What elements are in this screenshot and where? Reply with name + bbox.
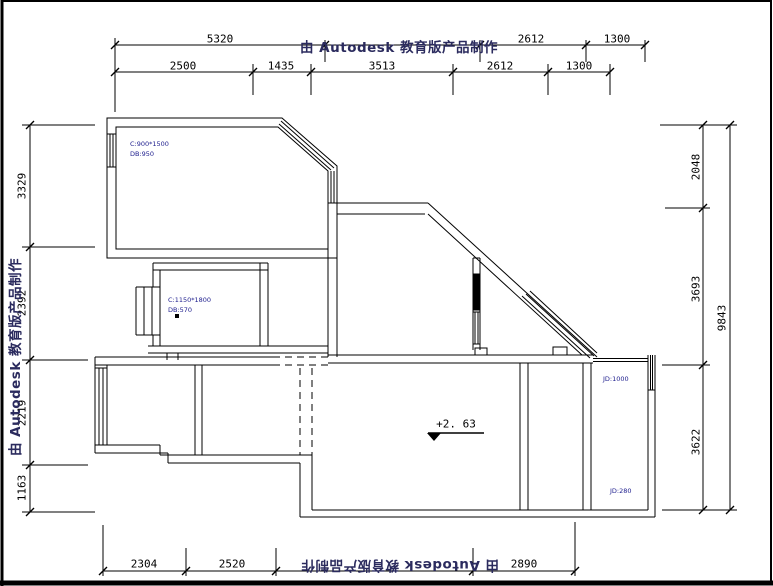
jd-annotation-upper: JD:1000 xyxy=(603,374,629,384)
dim-bottom-2890: 2890 xyxy=(511,559,538,570)
window-annotation-a: C:900*1500 DB:950 xyxy=(130,139,169,160)
dim-top1-2612: 2612 xyxy=(518,34,545,45)
window-a-size: C:900*1500 xyxy=(130,139,169,149)
dim-bottom-2304: 2304 xyxy=(131,559,158,570)
dim-top1-1300: 1300 xyxy=(604,34,631,45)
dim-top2-1300: 1300 xyxy=(566,61,593,72)
dim-top2-3513: 3513 xyxy=(369,61,396,72)
watermark-top: 由 Autodesk 教育版产品制作 xyxy=(300,36,498,56)
dim-bottom-2520: 2520 xyxy=(219,559,246,570)
window-a-sill: DB:950 xyxy=(130,149,169,159)
window-annotation-b: C:1150*1800 DB:570 xyxy=(168,295,211,316)
point-marker xyxy=(175,314,179,318)
dim-top2-1435: 1435 xyxy=(268,61,295,72)
dim-right-9843: 9843 xyxy=(717,305,728,332)
dim-top2-2612: 2612 xyxy=(487,61,514,72)
dashed-opening xyxy=(273,357,322,455)
dim-left-1163: 1163 xyxy=(17,475,28,502)
dim-right-3693: 3693 xyxy=(691,276,702,303)
cad-canvas: 5320 2612 1300 2500 1435 3513 2612 1300 … xyxy=(0,0,773,586)
dim-left-3329: 3329 xyxy=(17,173,28,200)
windows xyxy=(95,121,655,445)
window-b-size: C:1150*1800 xyxy=(168,295,211,305)
watermark-left: 由 Autodesk 教育版产品制作 xyxy=(4,258,24,456)
dim-top1-5320: 5320 xyxy=(207,34,234,45)
floor-plan-drawing xyxy=(0,0,773,586)
dim-top2-2500: 2500 xyxy=(170,61,197,72)
watermark-bottom: 由 Autodesk 教育版产品制作 xyxy=(301,557,499,577)
dim-right-3622: 3622 xyxy=(691,429,702,456)
level-marker-icon xyxy=(427,433,484,441)
jd-annotation-lower: JD:280 xyxy=(610,486,632,496)
sheet-border xyxy=(0,0,773,586)
level-annotation: +2. 63 xyxy=(436,418,476,431)
walls xyxy=(95,118,655,517)
dim-right-2048: 2048 xyxy=(691,154,702,181)
